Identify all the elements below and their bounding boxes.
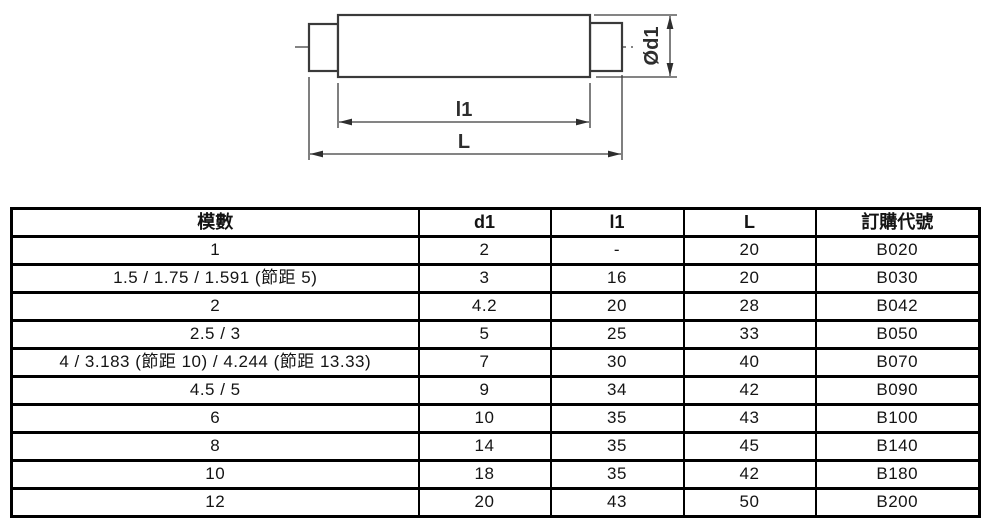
shaft-body: [338, 15, 590, 77]
cell-L: 43: [684, 405, 816, 433]
cell-L: 20: [684, 265, 816, 293]
dim-label-l1: l1: [456, 99, 473, 121]
cell-order-code: B180: [816, 461, 980, 489]
left-journal: [309, 24, 338, 71]
cell-order-code: B050: [816, 321, 980, 349]
cell-l1: -: [551, 237, 684, 265]
cell-l1: 35: [551, 461, 684, 489]
right-journal: [590, 23, 622, 71]
cell-L: 50: [684, 489, 816, 517]
cell-l1: 25: [551, 321, 684, 349]
cell-order-code: B042: [816, 293, 980, 321]
cell-module: 10: [12, 461, 419, 489]
cell-module: 4 / 3.183 (節距 10) / 4.244 (節距 13.33): [12, 349, 419, 377]
header-cell-order-code: 訂購代號: [816, 209, 980, 237]
table-row: 24.22028B042: [12, 293, 980, 321]
header-cell-d1: d1: [419, 209, 551, 237]
cell-d1: 9: [419, 377, 551, 405]
table-row: 6103543B100: [12, 405, 980, 433]
shaft-drawing: l1 L Ød1: [0, 0, 991, 195]
cell-d1: 2: [419, 237, 551, 265]
cell-order-code: B200: [816, 489, 980, 517]
cell-L: 33: [684, 321, 816, 349]
cell-module: 8: [12, 433, 419, 461]
spec-table: 模數d1l1L訂購代號 12-20B0201.5 / 1.75 / 1.591 …: [10, 207, 981, 518]
cell-d1: 14: [419, 433, 551, 461]
cell-l1: 35: [551, 433, 684, 461]
cell-d1: 4.2: [419, 293, 551, 321]
table-row: 2.5 / 352533B050: [12, 321, 980, 349]
cell-l1: 43: [551, 489, 684, 517]
cell-d1: 10: [419, 405, 551, 433]
table-row: 4 / 3.183 (節距 10) / 4.244 (節距 13.33)7304…: [12, 349, 980, 377]
table-row: 12-20B020: [12, 237, 980, 265]
cell-order-code: B030: [816, 265, 980, 293]
dim-label-d1: Ød1: [641, 27, 663, 66]
table-row: 1.5 / 1.75 / 1.591 (節距 5)31620B030: [12, 265, 980, 293]
cell-L: 45: [684, 433, 816, 461]
cell-order-code: B100: [816, 405, 980, 433]
cell-order-code: B140: [816, 433, 980, 461]
cell-L: 20: [684, 237, 816, 265]
cell-l1: 16: [551, 265, 684, 293]
header-cell-module: 模數: [12, 209, 419, 237]
table-row: 8143545B140: [12, 433, 980, 461]
table-row: 12204350B200: [12, 489, 980, 517]
cell-module: 6: [12, 405, 419, 433]
cell-l1: 30: [551, 349, 684, 377]
cell-L: 42: [684, 461, 816, 489]
cell-order-code: B020: [816, 237, 980, 265]
cell-order-code: B070: [816, 349, 980, 377]
header-cell-L: L: [684, 209, 816, 237]
cell-L: 42: [684, 377, 816, 405]
cell-L: 28: [684, 293, 816, 321]
cell-d1: 18: [419, 461, 551, 489]
cell-l1: 20: [551, 293, 684, 321]
cell-l1: 34: [551, 377, 684, 405]
cell-d1: 5: [419, 321, 551, 349]
cell-l1: 35: [551, 405, 684, 433]
cell-module: 12: [12, 489, 419, 517]
cell-d1: 7: [419, 349, 551, 377]
cell-module: 2: [12, 293, 419, 321]
cell-module: 1: [12, 237, 419, 265]
cell-order-code: B090: [816, 377, 980, 405]
cell-d1: 3: [419, 265, 551, 293]
header-row: 模數d1l1L訂購代號: [12, 209, 980, 237]
header-cell-l1: l1: [551, 209, 684, 237]
table-row: 10183542B180: [12, 461, 980, 489]
cell-d1: 20: [419, 489, 551, 517]
dim-label-L: L: [458, 131, 470, 153]
table-row: 4.5 / 593442B090: [12, 377, 980, 405]
cell-L: 40: [684, 349, 816, 377]
cell-module: 2.5 / 3: [12, 321, 419, 349]
cell-module: 4.5 / 5: [12, 377, 419, 405]
cell-module: 1.5 / 1.75 / 1.591 (節距 5): [12, 265, 419, 293]
